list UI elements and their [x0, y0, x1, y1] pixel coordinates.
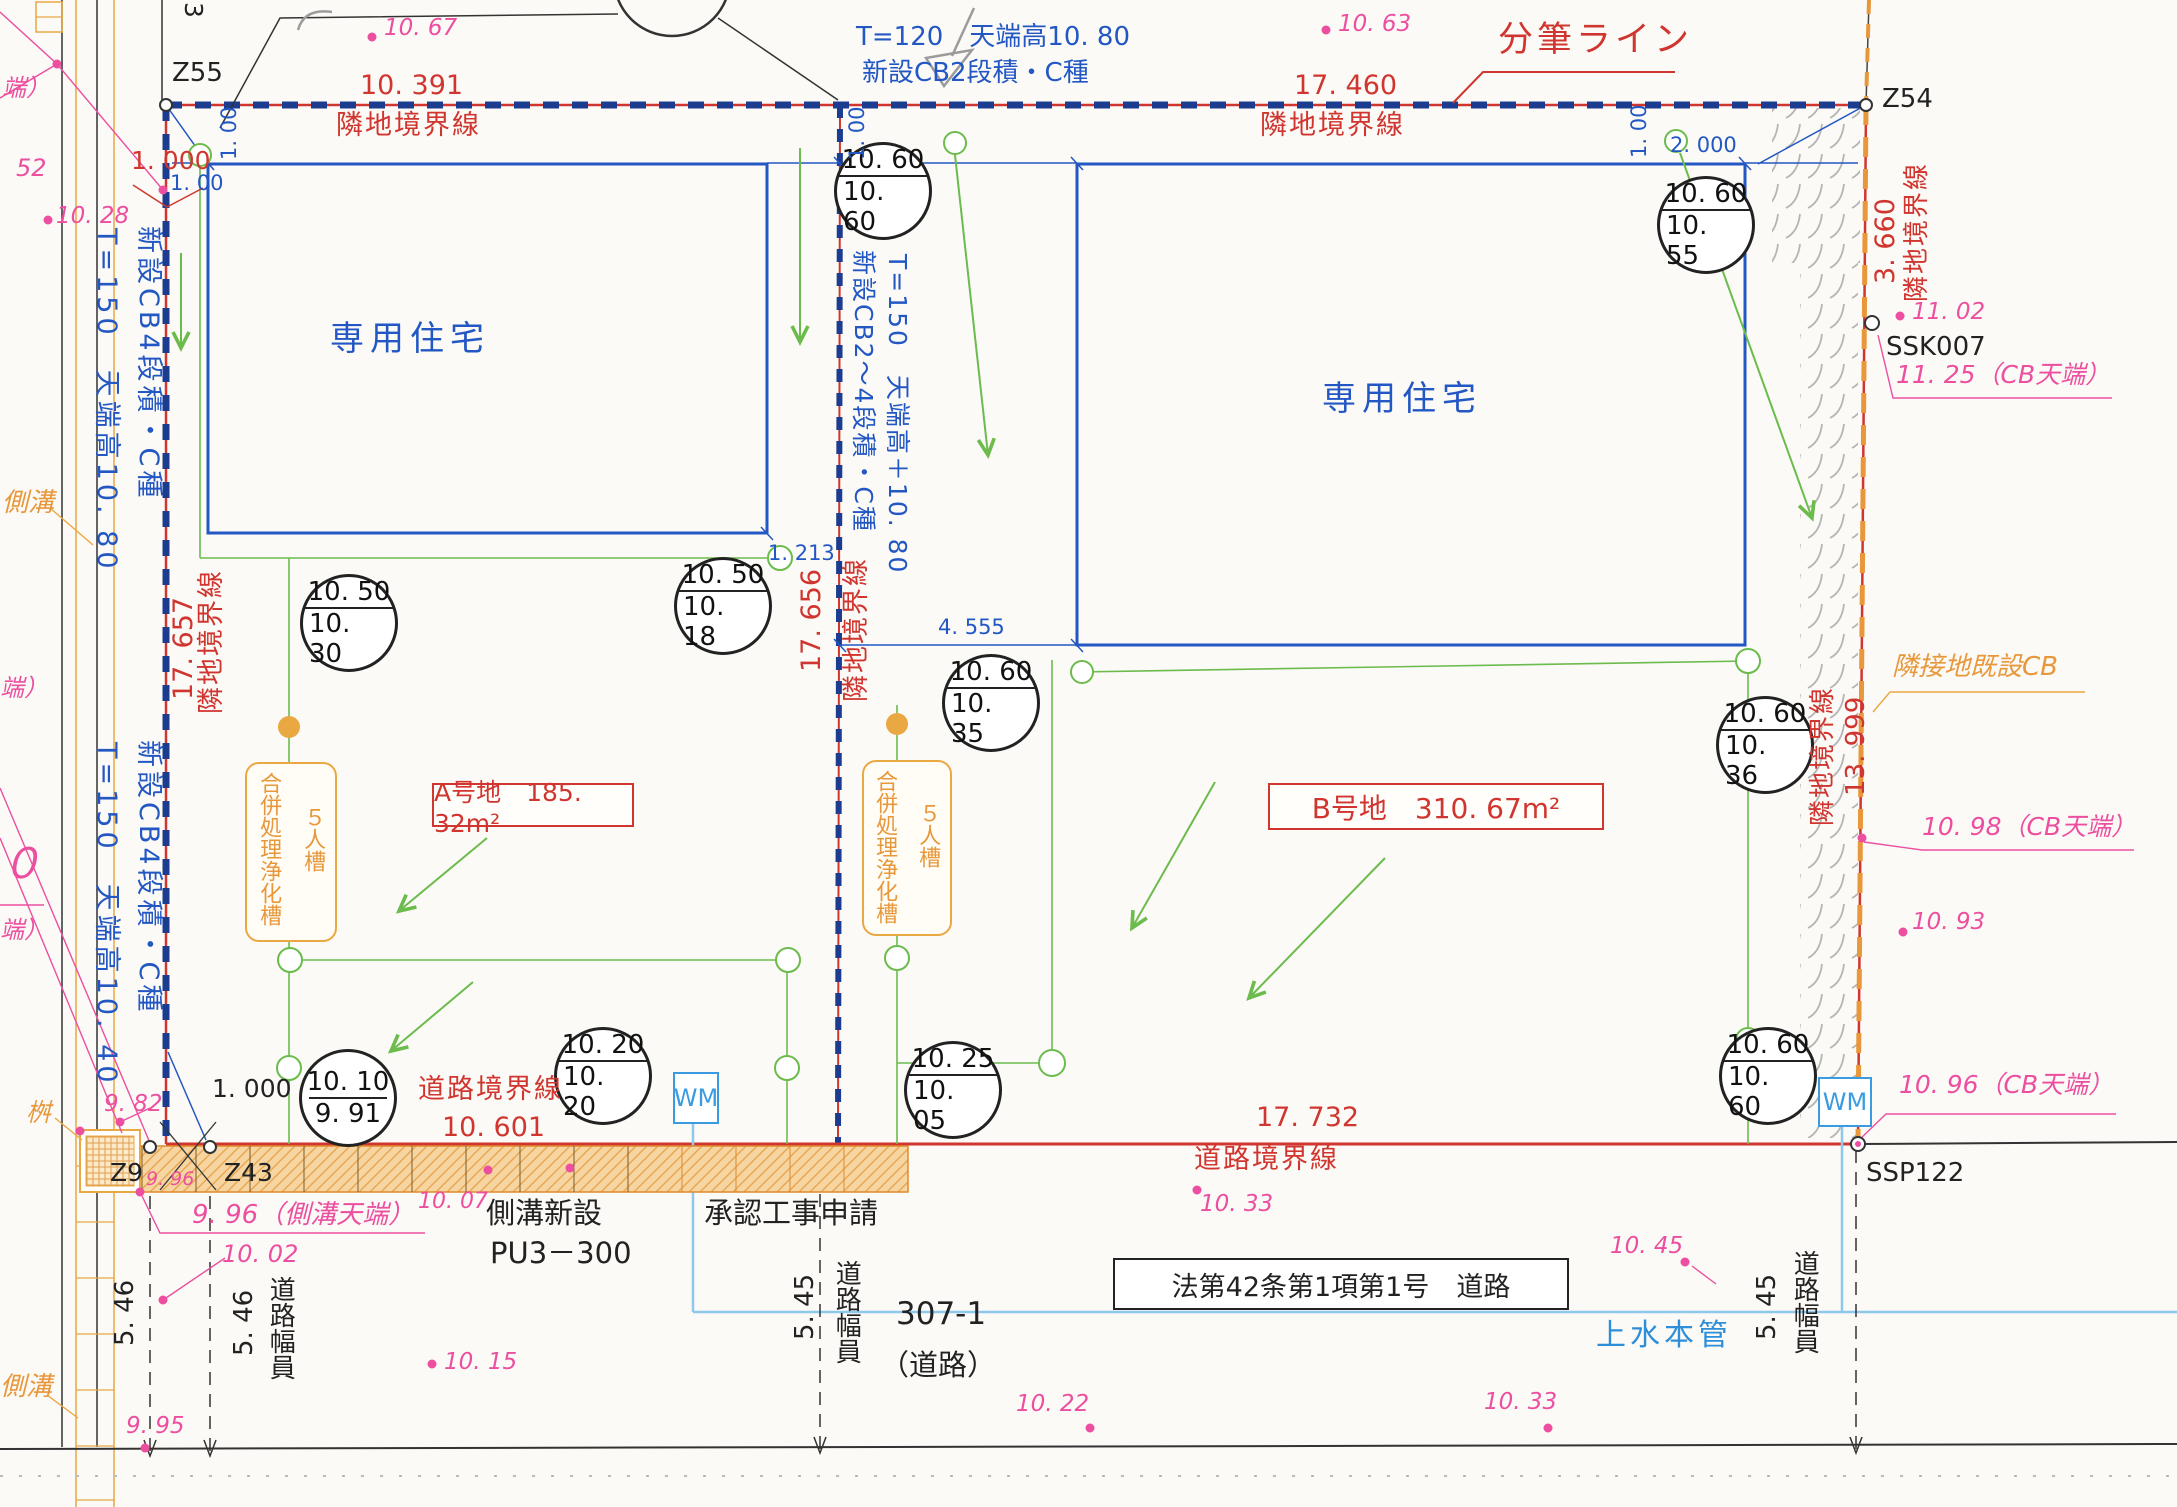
- septic-tank-a-box: 合併処理浄化槽 ５人槽: [245, 762, 337, 942]
- level-top: 10. 60: [1720, 699, 1811, 729]
- flow-arrows: [181, 148, 1812, 1051]
- boundary-label-right-mid: 隣地境界線: [1810, 686, 1837, 826]
- basin-label: 桝: [26, 1100, 51, 1126]
- new-gutter-strip: [100, 1146, 908, 1192]
- green-nodes: [189, 130, 1760, 1080]
- level-circle: 10. 5010. 18: [674, 557, 772, 655]
- level-circle: 10. 6010. 36: [1716, 696, 1814, 794]
- spot-height: 10. 96（CB天端）: [1899, 1072, 2113, 1098]
- plot-b-area-label: B号地 310. 67m²: [1312, 787, 1561, 827]
- spot-height: 10. 07: [418, 1190, 488, 1213]
- septic-size-label: ５人槽: [301, 806, 324, 872]
- level-bottom: 10. 60: [1722, 1060, 1814, 1122]
- septic-tank-b-box: 合併処理浄化槽 ５人槽: [862, 760, 952, 936]
- level-top: 10. 60: [946, 657, 1037, 687]
- septic-tank-label: 合併処理浄化槽: [257, 772, 280, 926]
- wall-note-divider-1: T=150 天端高＋10. 80: [884, 254, 910, 574]
- boundary-dim-left: 17. 657: [170, 597, 198, 700]
- point-label-z43: Z43: [224, 1160, 273, 1186]
- boundary-dim-top-right: 17. 460: [1294, 72, 1397, 100]
- wall-note-left-upper-2: 新設CB4段積・C種: [134, 226, 162, 501]
- level-circle: 10. 2510. 05: [904, 1041, 1002, 1139]
- water-meter-box-right: WM: [1818, 1077, 1872, 1127]
- cut-label-fragment: 端）: [0, 676, 48, 701]
- gap-dim-4555: 4. 555: [938, 616, 1005, 638]
- boundary-dim-top-left: 10. 391: [360, 72, 463, 100]
- offset-dim: 1. 00: [846, 107, 868, 160]
- road-width-dim: 5. 45: [1754, 1274, 1781, 1340]
- offset-dim: 1. 00: [170, 172, 223, 194]
- spot-height: 10. 33: [1200, 1192, 1273, 1216]
- level-bottom: 10. 18: [677, 590, 769, 652]
- point-label-z55: Z55: [172, 60, 223, 87]
- level-top: 10. 50: [304, 577, 395, 607]
- water-meter-box-left: WM: [673, 1072, 719, 1124]
- ssp122-dot: [1855, 1141, 1861, 1147]
- plot-a-area-box: A号地 185. 32m²: [432, 783, 634, 827]
- spot-height: 9. 82: [104, 1092, 163, 1116]
- wall-note-left-lower-2: 新設CB4段積・C種: [134, 740, 162, 1015]
- existing-cb-label: 隣接地既設CB: [1892, 654, 2058, 681]
- road-width-label: 道路幅員: [266, 1276, 293, 1380]
- spot-height: 9. 96: [146, 1170, 194, 1190]
- spot-height: 10. 63: [1338, 12, 1411, 36]
- level-bottom: 10. 20: [557, 1060, 649, 1122]
- boundary-dim-right-top: 3. 660: [1872, 198, 1900, 284]
- wall-note-left-upper-1: T=150 天端高10. 80: [92, 228, 120, 573]
- spot-height: 10. 02: [222, 1242, 298, 1267]
- level-circle: 10. 5010. 30: [300, 574, 398, 672]
- offset-dim-black: 1. 000: [212, 1076, 292, 1102]
- boundary-label-top-right: 隣地境界線: [1260, 112, 1405, 140]
- building-b-label: 専用住宅: [1322, 382, 1482, 418]
- spot-height: 52: [16, 156, 47, 181]
- spot-height: 10. 28: [56, 204, 129, 228]
- plot-a-area-label: A号地 185. 32m²: [434, 773, 632, 838]
- level-circle: 10. 6010. 60: [1719, 1027, 1817, 1125]
- offset-dim: 1. 00: [218, 107, 240, 160]
- boundary-label-divider: 隣地境界線: [843, 557, 871, 702]
- boundary-label-right-top: 隣地境界線: [1904, 162, 1931, 302]
- level-circle: 10. 2010. 20: [554, 1027, 652, 1125]
- septic-size-label: ５人槽: [916, 802, 939, 868]
- green-survey-lines: [200, 167, 1748, 1144]
- level-top: 10. 25: [908, 1044, 999, 1074]
- gutter-label-upper: 側溝: [2, 490, 54, 517]
- level-top: 10. 60: [1723, 1030, 1814, 1060]
- road-width-label: 道路幅員: [832, 1260, 859, 1364]
- septic-tank-label: 合併処理浄化槽: [873, 770, 896, 924]
- survey-points: [144, 99, 1879, 1153]
- boundary-label-left: 隣地境界線: [198, 569, 226, 714]
- approval-note: 承認工事申請: [704, 1198, 878, 1228]
- road-width-label: 道路幅員: [1790, 1250, 1817, 1354]
- point-label-z9: Z9: [110, 1160, 143, 1186]
- point-label-ssk007: SSK007: [1886, 334, 1986, 361]
- manhole-dot-b: [886, 713, 908, 735]
- spot-height: 10. 33: [1484, 1390, 1557, 1414]
- new-gutter-note: 側溝新設: [486, 1198, 602, 1228]
- road-boundary-dim-right: 17. 732: [1256, 1104, 1359, 1132]
- gutter-label-lower: 側溝: [0, 1374, 52, 1401]
- boundary-lines: [166, 0, 2177, 1144]
- cut-label-fragment: 端）: [2, 76, 50, 101]
- road-width-lines: [144, 1150, 1862, 1456]
- water-meter-label: WM: [1823, 1088, 1867, 1116]
- level-bottom: 10. 05: [907, 1074, 999, 1136]
- level-top: 10. 20: [558, 1030, 649, 1060]
- spot-height: 9. 96（側溝天端）: [192, 1202, 414, 1229]
- blue-dimension-lines: [166, 105, 1866, 1140]
- lot-kind-label: （道路）: [880, 1350, 996, 1380]
- level-bottom: 10. 30: [303, 607, 395, 669]
- spot-height: 10. 22: [1016, 1392, 1089, 1416]
- level-top: 10. 50: [678, 560, 769, 590]
- point-label-z54: Z54: [1882, 86, 1933, 113]
- wall-note-divider-2: 新設CB2～4段積・C種: [850, 250, 876, 533]
- wall-note-top-1: T=120 天端高10. 80: [856, 24, 1130, 51]
- slope-hatch-top: [1772, 108, 1860, 263]
- gap-dim-2000: 2. 000: [1670, 134, 1737, 156]
- spot-height: 10. 15: [444, 1350, 517, 1374]
- cut-label-fragment: ０: [0, 842, 42, 886]
- road-boundary-dim-left: 10. 601: [442, 1114, 545, 1142]
- level-top: 10. 10: [303, 1067, 394, 1097]
- road-boundary-label-right: 道路境界線: [1194, 1146, 1339, 1174]
- water-main-label: 上水本管: [1596, 1320, 1732, 1352]
- wall-note-top-2: 新設CB2段積・C種: [862, 60, 1089, 87]
- level-circle: 10. 109. 91: [299, 1049, 397, 1147]
- manhole-dot-a: [278, 716, 300, 738]
- boundary-label-top-left: 隣地境界線: [336, 112, 481, 140]
- plot-b-area-box: B号地 310. 67m²: [1268, 783, 1604, 830]
- level-circle: 10. 6010. 55: [1657, 176, 1755, 274]
- spot-height: 11. 02: [1912, 300, 1985, 324]
- road-law-label: 法第42条第1項第1号 道路: [1172, 1265, 1511, 1304]
- spot-height: 9. 95: [126, 1414, 185, 1438]
- spot-height: 10. 93: [1912, 910, 1985, 934]
- level-bottom: 10. 36: [1719, 729, 1811, 791]
- spot-height: 10. 45: [1610, 1234, 1683, 1258]
- cut-label-fragment: 端）: [0, 918, 48, 943]
- spot-height: 10. 98（CB天端）: [1922, 814, 2136, 840]
- road-boundary-label-left: 道路境界線: [418, 1076, 563, 1104]
- lot-number-label: 307-1: [896, 1298, 986, 1331]
- boundary-dim-divider: 17. 656: [798, 569, 826, 672]
- road-width-dim: 5. 45: [792, 1274, 819, 1340]
- spot-height: 11. 25（CB天端）: [1896, 362, 2110, 388]
- site-plan-drawing: 10. 6010. 60 10. 6010. 55 10. 5010. 30 1…: [0, 0, 2177, 1507]
- road-width-dim: 5. 46: [112, 1280, 139, 1346]
- level-bottom: 9. 91: [309, 1097, 387, 1129]
- building-a-label: 専用住宅: [330, 322, 490, 358]
- gutter-type-note: PU3－300: [490, 1238, 632, 1268]
- water-meter-label: WM: [674, 1084, 718, 1112]
- subdivision-line-label: 分筆ライン: [1498, 22, 1693, 59]
- road-south-edge: [0, 1444, 2177, 1449]
- level-bottom: 10. 35: [945, 687, 1037, 749]
- spot-height: 10. 67: [384, 16, 457, 40]
- level-circle: 10. 6010. 35: [942, 654, 1040, 752]
- level-bottom: 10. 60: [837, 175, 929, 237]
- gap-dim-1213: 1. 213: [768, 542, 835, 564]
- point-label-ssp122: SSP122: [1866, 1160, 1964, 1187]
- edge-note-3: 3: [180, 2, 206, 18]
- wall-note-left-lower-1: T=150 天端高10. 40: [92, 742, 120, 1087]
- offset-dim: 1. 00: [1628, 105, 1650, 158]
- level-bottom: 10. 55: [1660, 209, 1752, 271]
- boundary-dim-right-mid: 13. 999: [1843, 697, 1870, 796]
- road-law-box: 法第42条第1項第1号 道路: [1113, 1258, 1569, 1310]
- road-width-dim: 5. 46: [231, 1290, 258, 1356]
- level-top: 10. 60: [1661, 179, 1752, 209]
